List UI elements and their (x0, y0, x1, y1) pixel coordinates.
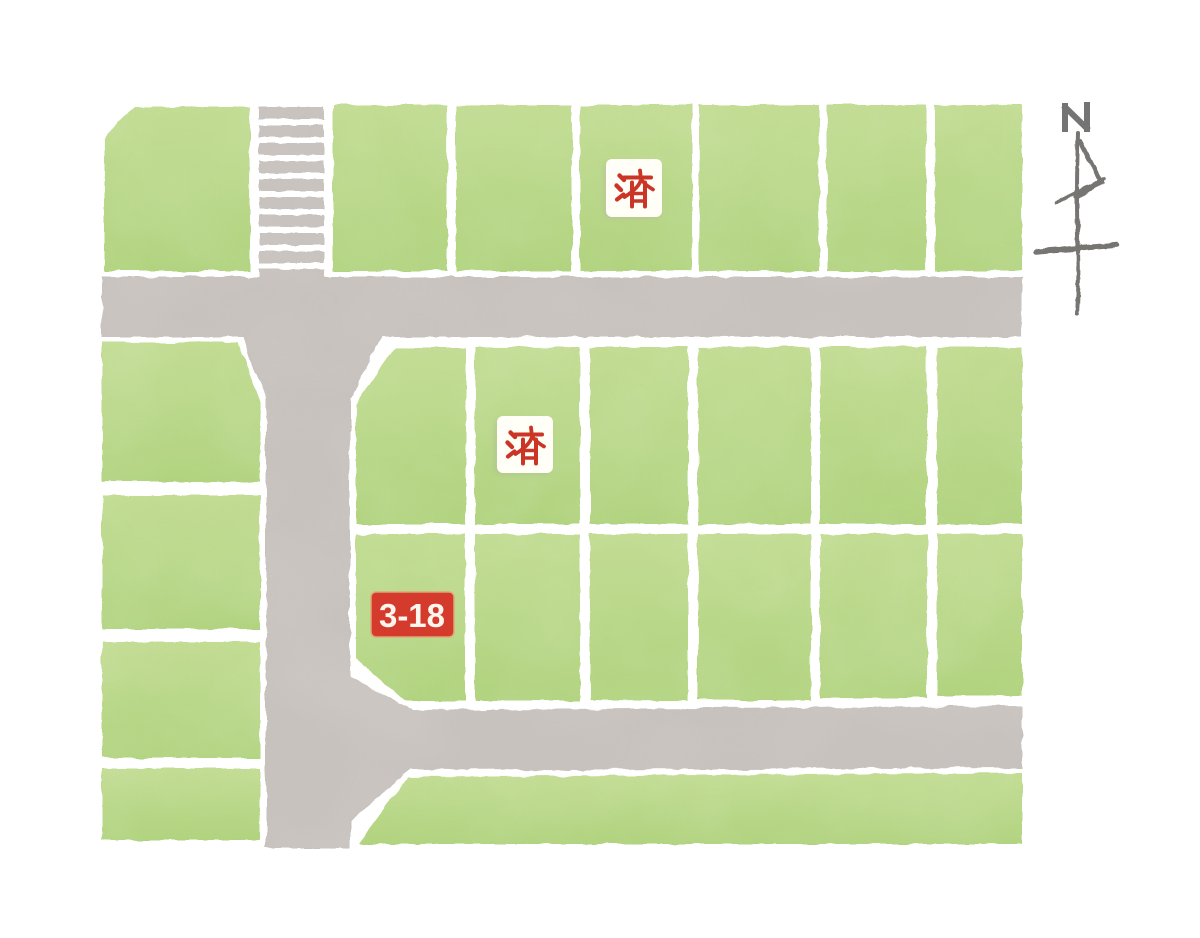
svg-text:3-18: 3-18 (379, 597, 445, 634)
